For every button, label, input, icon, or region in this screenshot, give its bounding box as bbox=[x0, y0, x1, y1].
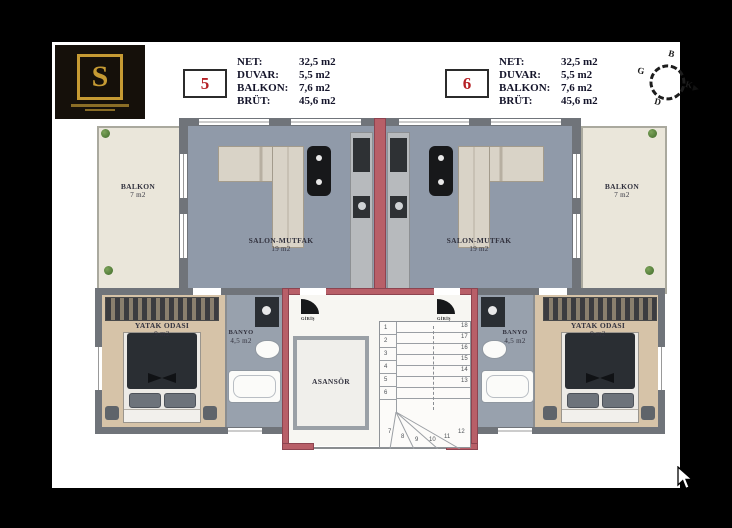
stair-number: 1 bbox=[384, 325, 387, 331]
unit-6-info: 6 NET:32,5 m2 DUVAR:5,5 m2 BALKON:7,6 m2… bbox=[445, 56, 655, 116]
balcony-left-label: BALKON 7 m2 bbox=[97, 182, 179, 200]
stove-left bbox=[353, 138, 370, 172]
place-setting bbox=[438, 179, 444, 185]
stair-number: 12 bbox=[458, 429, 465, 435]
nightstand bbox=[203, 406, 217, 420]
area-value: 5,5 m2 bbox=[561, 69, 598, 82]
stair-tread bbox=[380, 399, 396, 400]
window bbox=[491, 119, 561, 125]
stair-number: 10 bbox=[429, 437, 436, 443]
hall-wall-right bbox=[471, 288, 478, 450]
entrance-door-label-left: GİRİŞ bbox=[301, 316, 315, 321]
bathroom-left-label: BANYO 4,5 m2 bbox=[221, 328, 261, 346]
screen: { "window": {"bg": "#000000", "panel_bg"… bbox=[0, 0, 732, 528]
staircase: 1 2 3 4 5 6 18 17 16 15 14 13 7 8 9 10 1… bbox=[379, 321, 471, 448]
compass-circle bbox=[646, 61, 690, 105]
door-opening bbox=[193, 288, 221, 295]
stair-number: 9 bbox=[415, 437, 418, 443]
pillow bbox=[602, 393, 634, 408]
hall-wall-left bbox=[282, 288, 289, 450]
balcony-door-window bbox=[573, 214, 580, 258]
sofa-left-chaise bbox=[272, 146, 304, 248]
wall-bed-bath-right bbox=[533, 295, 535, 427]
area-label: BRÜT: bbox=[499, 95, 561, 108]
wall-mid-left bbox=[95, 288, 282, 295]
mouse-cursor bbox=[676, 466, 696, 492]
stair-number: 8 bbox=[401, 434, 404, 440]
unit-5-info: 5 NET:32,5 m2 DUVAR:5,5 m2 BALKON:7,6 m2… bbox=[183, 56, 393, 116]
unit-5-area-table: NET:32,5 m2 DUVAR:5,5 m2 BALKON:7,6 m2 B… bbox=[237, 56, 336, 108]
bed-headboard bbox=[124, 409, 200, 422]
window bbox=[228, 428, 262, 434]
compass-north-arrow bbox=[692, 85, 699, 92]
wall-bed-bath-left bbox=[225, 295, 227, 427]
bed-left bbox=[123, 332, 201, 423]
unit-6-number-box: 6 bbox=[445, 69, 489, 98]
window bbox=[199, 119, 269, 125]
place-setting bbox=[316, 179, 322, 185]
wall-balcony-left bbox=[179, 126, 188, 290]
plant-icon bbox=[101, 129, 110, 138]
sink-right bbox=[390, 196, 407, 218]
plant-icon bbox=[645, 266, 654, 275]
hall-wall-bottom-left bbox=[282, 443, 314, 450]
balcony-door-window bbox=[180, 154, 187, 198]
logo-monogram: S bbox=[77, 54, 123, 100]
area-value: 32,5 m2 bbox=[561, 56, 598, 69]
stair-tread bbox=[380, 347, 396, 348]
bed-right bbox=[561, 332, 639, 423]
bathroom-vanity-left bbox=[255, 297, 279, 327]
wardrobe-right bbox=[543, 297, 657, 321]
stair-number: 16 bbox=[461, 345, 468, 351]
plant-icon bbox=[104, 266, 113, 275]
pillow bbox=[567, 393, 599, 408]
area-label: BALKON: bbox=[499, 82, 561, 95]
area-label: DUVAR: bbox=[237, 69, 299, 82]
stair-tread bbox=[380, 373, 396, 374]
bathtub-left bbox=[228, 370, 281, 403]
stair-number: 13 bbox=[461, 378, 468, 384]
area-value: 32,5 m2 bbox=[299, 56, 336, 69]
area-value: 45,6 m2 bbox=[299, 95, 336, 108]
unit-5-number-box: 5 bbox=[183, 69, 227, 98]
nightstand bbox=[105, 406, 119, 420]
stair-number: 18 bbox=[461, 323, 468, 329]
wardrobe-left bbox=[105, 297, 219, 321]
balcony-right-label: BALKON 7 m2 bbox=[581, 182, 663, 200]
window bbox=[658, 347, 665, 390]
dining-table-left bbox=[307, 146, 331, 196]
window bbox=[399, 119, 469, 125]
bed-bow bbox=[586, 373, 614, 383]
balcony-door-window bbox=[573, 154, 580, 198]
compass-west: B bbox=[667, 48, 675, 59]
window bbox=[95, 347, 102, 390]
stair-number: 6 bbox=[384, 390, 387, 396]
bathroom-right-label: BANYO 4,5 m2 bbox=[495, 328, 535, 346]
stair-number: 5 bbox=[384, 377, 387, 383]
stair-number: 15 bbox=[461, 356, 468, 362]
party-wall-center bbox=[374, 118, 386, 301]
wall-mid-right bbox=[478, 288, 665, 295]
stair-number: 3 bbox=[384, 351, 387, 357]
unit-6-area-table: NET:32,5 m2 DUVAR:5,5 m2 BALKON:7,6 m2 B… bbox=[499, 56, 598, 108]
logo-subtext-illegible bbox=[85, 109, 115, 111]
entrance-opening-right bbox=[434, 288, 460, 295]
area-value: 7,6 m2 bbox=[561, 82, 598, 95]
place-setting bbox=[438, 155, 444, 161]
door-opening bbox=[539, 288, 567, 295]
compass-south: G bbox=[636, 65, 645, 76]
bathroom-vanity-right bbox=[481, 297, 505, 327]
window bbox=[291, 119, 361, 125]
pillow bbox=[164, 393, 196, 408]
stair-number: 17 bbox=[461, 334, 468, 340]
stair-tread bbox=[380, 360, 396, 361]
balcony-right bbox=[581, 126, 667, 294]
nightstand bbox=[641, 406, 655, 420]
compass-east: D bbox=[653, 96, 662, 107]
area-value: 7,6 m2 bbox=[299, 82, 336, 95]
nightstand bbox=[543, 406, 557, 420]
entrance-opening-left bbox=[300, 288, 326, 295]
area-label: BALKON: bbox=[237, 82, 299, 95]
stair-number: 11 bbox=[444, 434, 450, 440]
stair-number: 7 bbox=[388, 429, 391, 435]
stove-right bbox=[390, 138, 407, 172]
place-setting bbox=[316, 155, 322, 161]
floor-plan: GİRİŞ GİRİŞ ASANSÖR 1 2 3 4 5 6 bbox=[95, 118, 665, 466]
pillow bbox=[129, 393, 161, 408]
company-logo: S bbox=[55, 45, 145, 119]
stair-tread bbox=[380, 334, 396, 335]
area-label: BRÜT: bbox=[237, 95, 299, 108]
area-value: 45,6 m2 bbox=[561, 95, 598, 108]
stair-number: 14 bbox=[461, 367, 468, 373]
stair-number: 4 bbox=[384, 364, 387, 370]
area-label: NET: bbox=[237, 56, 299, 69]
plant-icon bbox=[648, 129, 657, 138]
dining-table-right bbox=[429, 146, 453, 196]
balcony-door-window bbox=[180, 214, 187, 258]
sink-left bbox=[353, 196, 370, 218]
window bbox=[498, 428, 532, 434]
stair-tread bbox=[380, 386, 396, 387]
bed-headboard bbox=[562, 409, 638, 422]
stair-number: 2 bbox=[384, 338, 387, 344]
bathtub-right bbox=[481, 370, 534, 403]
area-label: DUVAR: bbox=[499, 69, 561, 82]
living-room-left-label: SALON-MUTFAK 19 m2 bbox=[188, 236, 374, 254]
bed-bow bbox=[148, 373, 176, 383]
bedroom-right-label: YATAK ODASI 9 m2 bbox=[535, 321, 661, 339]
area-value: 5,5 m2 bbox=[299, 69, 336, 82]
stair-centerline bbox=[433, 326, 434, 410]
logo-text-illegible bbox=[71, 104, 129, 107]
elevator-label: ASANSÖR bbox=[293, 377, 369, 386]
wall-balcony-right bbox=[572, 126, 581, 290]
sofa-right-chaise bbox=[458, 146, 490, 248]
area-label: NET: bbox=[499, 56, 561, 69]
living-room-right-label: SALON-MUTFAK 19 m2 bbox=[386, 236, 572, 254]
bedroom-left-label: YATAK ODASI 9 m2 bbox=[99, 321, 225, 339]
